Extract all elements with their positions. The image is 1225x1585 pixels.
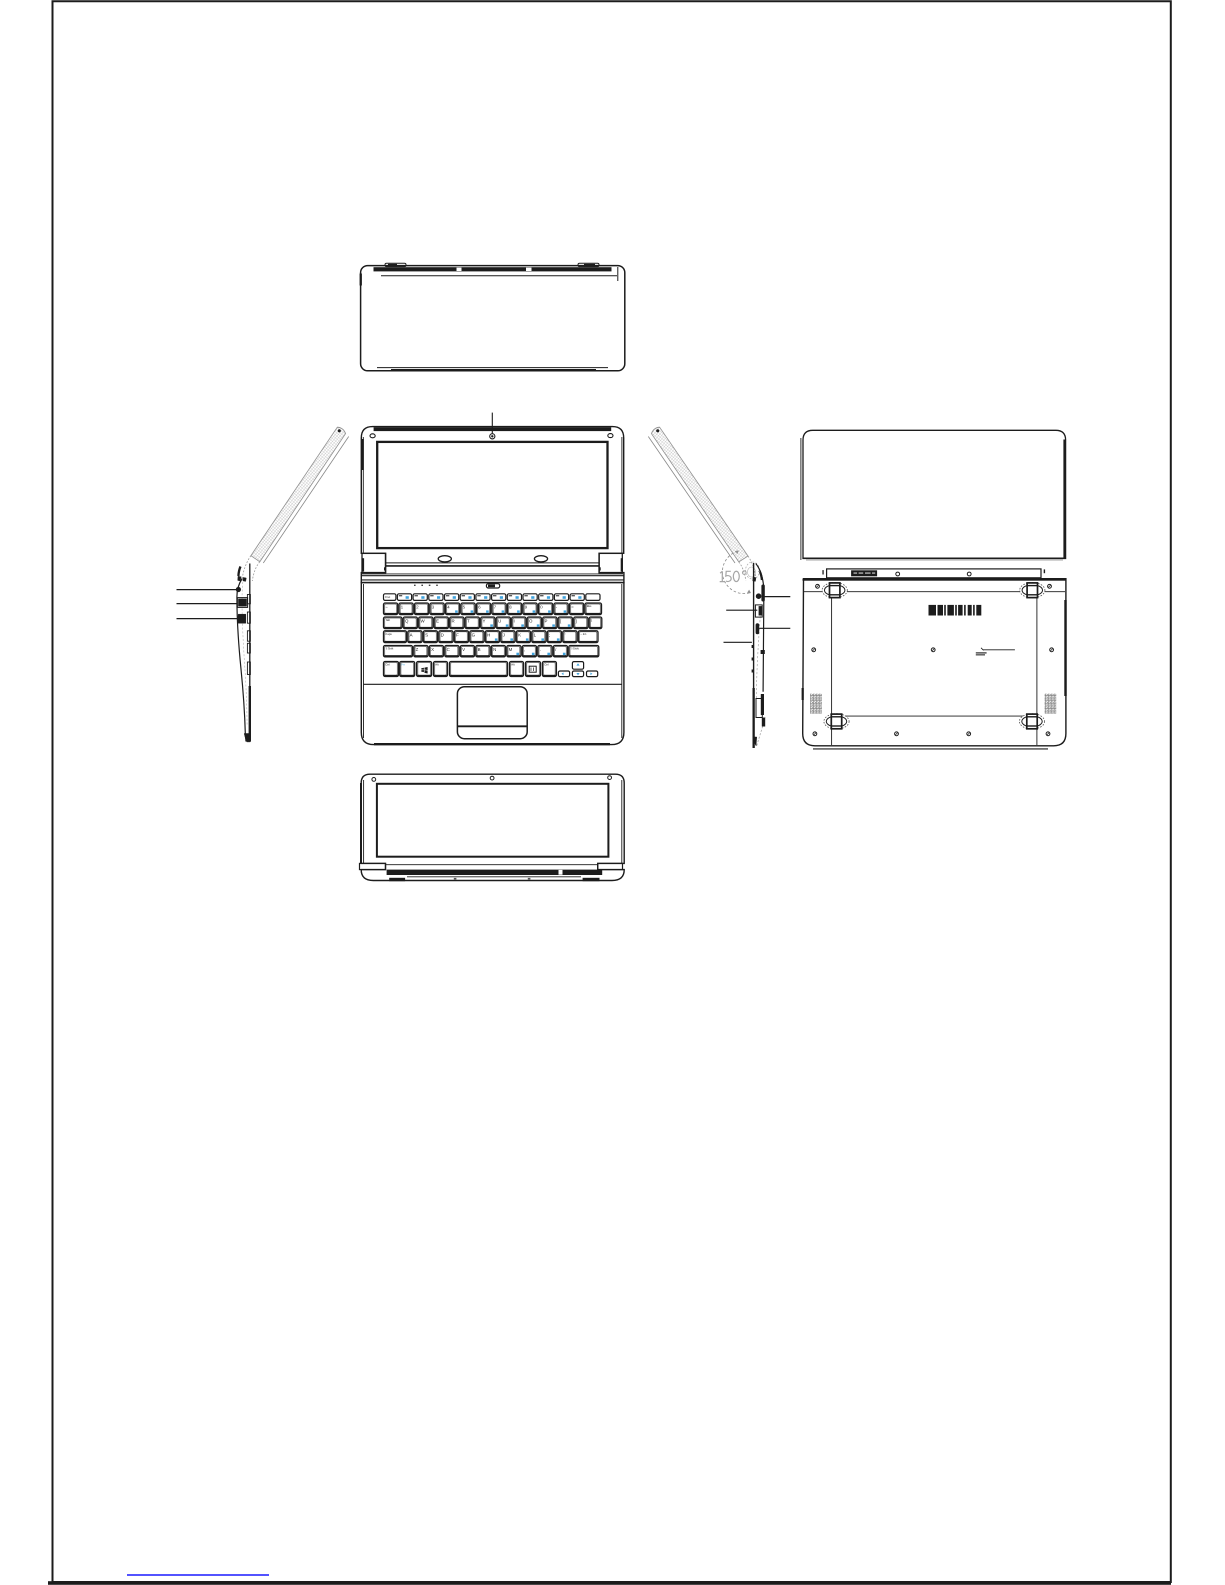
svg-text:A: A xyxy=(410,632,413,637)
svg-text:Alt: Alt xyxy=(511,663,514,667)
svg-text:⇧Shift: ⇧Shift xyxy=(571,647,579,651)
svg-text:B: B xyxy=(478,647,481,652)
svg-text:Tab: Tab xyxy=(385,618,390,622)
svg-text:N: N xyxy=(493,647,496,652)
svg-text:Z: Z xyxy=(416,647,419,652)
svg-text:E: E xyxy=(436,619,439,624)
svg-text:X: X xyxy=(431,647,434,652)
svg-text:K: K xyxy=(518,632,521,637)
svg-text:D: D xyxy=(441,632,444,637)
svg-text:←En: ←En xyxy=(580,632,587,636)
svg-text:U: U xyxy=(498,619,501,624)
svg-text:Caps: Caps xyxy=(385,632,392,636)
svg-text:O: O xyxy=(529,619,533,624)
svg-text:;: ; xyxy=(549,632,550,637)
svg-text:Ctrl: Ctrl xyxy=(385,663,390,667)
svg-text:]: ] xyxy=(576,619,577,624)
svg-text:Y: Y xyxy=(483,619,486,624)
svg-text:.: . xyxy=(540,647,541,652)
svg-text:⇧Shift: ⇧Shift xyxy=(385,647,393,651)
svg-text:Fn: Fn xyxy=(402,663,406,667)
svg-text:V: V xyxy=(462,647,465,652)
svg-text:R: R xyxy=(452,619,455,624)
svg-text:Alt: Alt xyxy=(435,663,438,667)
svg-text:Ctrl: Ctrl xyxy=(544,663,549,667)
svg-text:,: , xyxy=(524,647,525,652)
svg-text:F: F xyxy=(456,632,459,637)
svg-text:T: T xyxy=(467,619,470,624)
svg-text:S: S xyxy=(425,632,428,637)
svg-text:Esc: Esc xyxy=(385,595,391,599)
svg-text:': ' xyxy=(565,632,566,637)
svg-text:P: P xyxy=(545,619,548,624)
svg-text:J: J xyxy=(503,632,505,637)
svg-text:G: G xyxy=(472,632,476,637)
svg-text:Q: Q xyxy=(405,619,409,624)
svg-text:C: C xyxy=(447,647,450,652)
svg-text:Bks: Bks xyxy=(587,604,592,608)
svg-text:I: I xyxy=(514,619,515,624)
svg-text:H: H xyxy=(487,632,490,637)
svg-text:M: M xyxy=(509,647,513,652)
